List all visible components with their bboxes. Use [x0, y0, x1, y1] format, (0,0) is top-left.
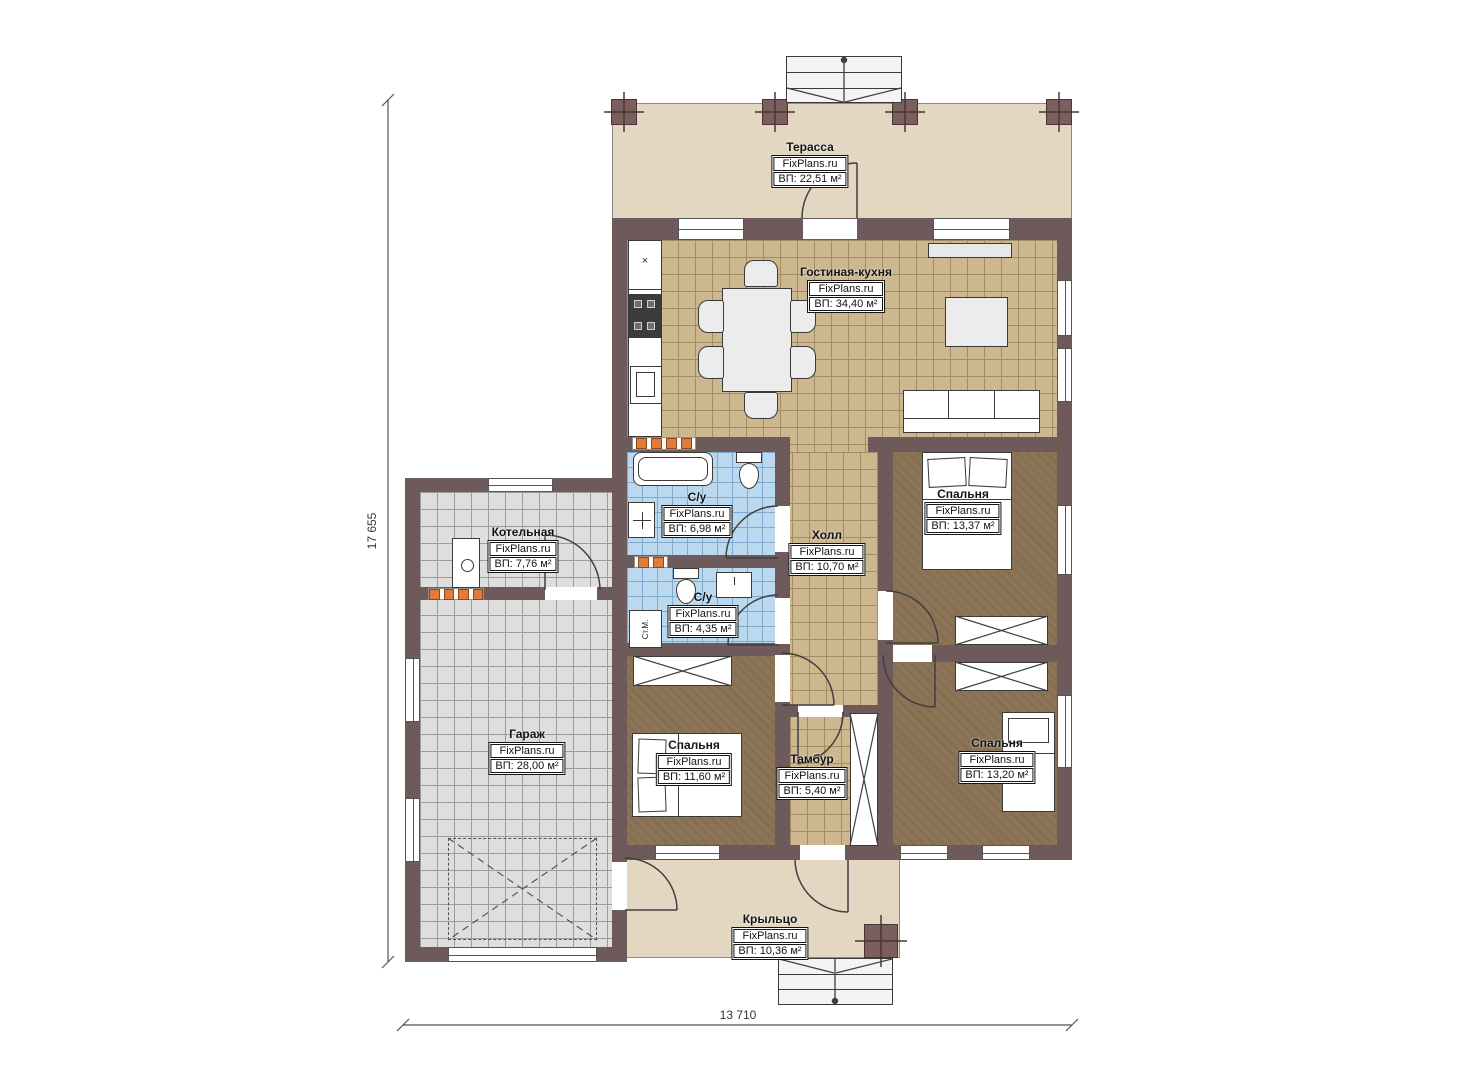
column [762, 99, 788, 125]
window [1057, 280, 1072, 336]
sofa-seam [904, 418, 1039, 419]
window [405, 658, 420, 722]
toilet-tank [673, 568, 699, 579]
brand-watermark: FixPlans.ru [669, 607, 736, 621]
chair [790, 346, 816, 379]
room-area: ВП: 22,51 м² [773, 172, 846, 186]
floor-plan: × Ст.М. [0, 0, 1473, 1080]
room-area: ВП: 4,35 м² [669, 622, 736, 636]
room-area: ВП: 34,40 м² [809, 297, 882, 311]
room-name: Холл [788, 528, 865, 542]
chair [744, 392, 778, 419]
room-name: Гараж [488, 727, 565, 741]
bathtub [633, 452, 713, 486]
chair [698, 300, 724, 333]
room-name: Спальня [656, 738, 732, 752]
window [1057, 348, 1072, 402]
wall [868, 437, 1057, 452]
room-label-porch: Крыльцо FixPlans.ru ВП: 10,36 м² [731, 912, 808, 960]
room-name: Терасса [771, 140, 848, 154]
room-name: С/у [667, 590, 738, 604]
room-area: ВП: 10,70 м² [790, 560, 863, 574]
window [982, 845, 1030, 860]
column [611, 99, 637, 125]
door-opening [800, 845, 845, 860]
wall [878, 437, 893, 860]
wardrobe [633, 656, 732, 686]
room-area: ВП: 7,76 м² [489, 557, 556, 571]
stove [629, 294, 661, 338]
garage-gate-zone [448, 838, 597, 940]
door-opening [798, 705, 843, 717]
wardrobe [955, 662, 1048, 691]
door-opening [775, 598, 790, 644]
washbasin [628, 502, 655, 538]
brand-watermark: FixPlans.ru [926, 504, 999, 518]
column [864, 924, 898, 958]
brand-watermark: FixPlans.ru [658, 755, 730, 769]
room-name: Спальня [924, 487, 1001, 501]
room-area: ВП: 10,36 м² [733, 944, 806, 958]
room-area: ВП: 13,37 м² [926, 519, 999, 533]
room-name: Спальня [958, 736, 1035, 750]
kitchen-sink [630, 366, 662, 404]
washing-machine-label: Ст.М. [641, 614, 650, 645]
room-name: Котельная [487, 525, 558, 539]
window [405, 798, 420, 862]
door-opening [803, 219, 857, 239]
room-label-bedroom-bottom-right: Спальня FixPlans.ru ВП: 13,20 м² [958, 736, 1035, 784]
boiler [452, 538, 480, 588]
window [655, 845, 720, 860]
room-area: ВП: 13,20 м² [960, 768, 1033, 782]
sofa-seam [994, 391, 995, 418]
kitchen-cabinet: × [628, 240, 662, 290]
room-area: ВП: 6,98 м² [663, 522, 730, 536]
room-label-bedroom-top-right: Спальня FixPlans.ru ВП: 13,37 м² [924, 487, 1001, 535]
window [488, 478, 553, 492]
dining-table [722, 288, 792, 392]
brand-watermark: FixPlans.ru [809, 282, 882, 296]
window [933, 218, 1010, 240]
washing-machine: Ст.М. [629, 610, 662, 648]
hall-floor [775, 452, 880, 712]
room-area: ВП: 28,00 м² [490, 759, 563, 773]
room-area: ВП: 5,40 м² [778, 784, 845, 798]
radiator [632, 437, 696, 450]
room-name: Крыльцо [731, 912, 808, 926]
dimension-height: 17 655 [365, 513, 379, 550]
brand-watermark: FixPlans.ru [490, 744, 563, 758]
room-label-bathroom-2: С/у FixPlans.ru ВП: 4,35 м² [667, 590, 738, 638]
room-label-terrace: Терасса FixPlans.ru ВП: 22,51 м² [771, 140, 848, 188]
door-opening [893, 645, 932, 662]
door-opening [545, 587, 597, 600]
door-opening [612, 862, 627, 910]
radiator [634, 556, 668, 568]
brand-watermark: FixPlans.ru [489, 542, 556, 556]
door-opening [878, 591, 893, 640]
wardrobe [955, 616, 1048, 645]
brand-watermark: FixPlans.ru [773, 157, 846, 171]
radiator [428, 588, 484, 600]
tv-bench [928, 243, 1012, 258]
room-label-garage: Гараж FixPlans.ru ВП: 28,00 м² [488, 727, 565, 775]
room-label-bathroom-1: С/у FixPlans.ru ВП: 6,98 м² [661, 490, 732, 538]
sofa-seam [948, 391, 949, 418]
window [678, 218, 744, 240]
cabinet-mark: × [629, 255, 661, 267]
toilet-tank [736, 452, 762, 463]
terrace-stairs [786, 56, 902, 103]
window [900, 845, 948, 860]
closet [850, 713, 878, 846]
brand-watermark: FixPlans.ru [960, 753, 1033, 767]
room-label-living-kitchen: Гостиная-кухня FixPlans.ru ВП: 34,40 м² [800, 265, 892, 313]
window [1057, 695, 1072, 768]
room-label-vestibule: Тамбур FixPlans.ru ВП: 5,40 м² [776, 752, 847, 800]
brand-watermark: FixPlans.ru [778, 769, 845, 783]
brand-watermark: FixPlans.ru [733, 929, 806, 943]
room-name: Тамбур [776, 752, 847, 766]
room-label-bedroom-bottom-left: Спальня FixPlans.ru ВП: 11,60 м² [656, 738, 732, 786]
sofa [903, 390, 1040, 433]
room-label-boiler: Котельная FixPlans.ru ВП: 7,76 м² [487, 525, 558, 573]
chair [698, 346, 724, 379]
room-label-hall: Холл FixPlans.ru ВП: 10,70 м² [788, 528, 865, 576]
porch-stairs [778, 958, 893, 1005]
door-opening [775, 655, 790, 702]
room-area: ВП: 11,60 м² [658, 770, 730, 784]
room-name: С/у [661, 490, 732, 504]
coffee-table [945, 297, 1008, 347]
column [1046, 99, 1072, 125]
brand-watermark: FixPlans.ru [663, 507, 730, 521]
room-name: Гостиная-кухня [800, 265, 892, 279]
dimension-width: 13 710 [720, 1008, 757, 1022]
garage-gate [448, 947, 597, 962]
brand-watermark: FixPlans.ru [790, 545, 863, 559]
chair [744, 260, 778, 287]
window [1057, 505, 1072, 575]
